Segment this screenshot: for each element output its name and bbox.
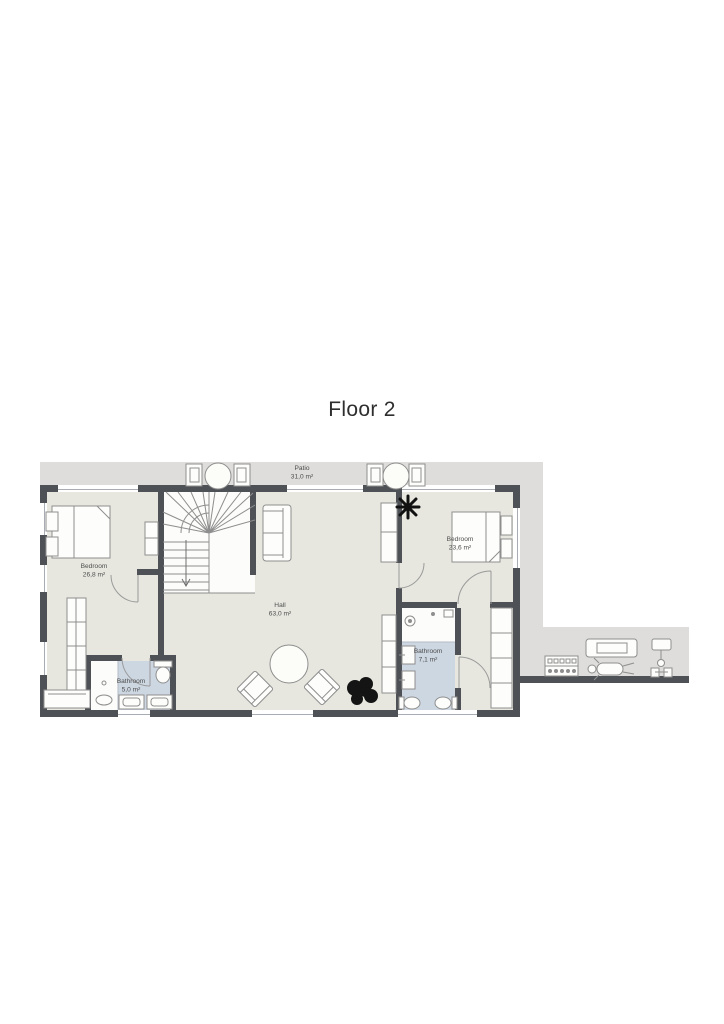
- window: [252, 710, 313, 717]
- window: [118, 710, 150, 717]
- room-label-hall: Hall63,0 m²: [269, 602, 291, 619]
- room-label-bedroom-right: Bedroom23,6 m²: [447, 536, 474, 553]
- window: [398, 710, 477, 717]
- wall-bedroom-right-upper: [396, 492, 402, 563]
- floor-plan-canvas: Patio31,0 m² Bedroom26,8 m² Bedroom23,6 …: [0, 0, 724, 1024]
- window: [513, 508, 520, 568]
- room-label-bedroom-left: Bedroom26,8 m²: [81, 563, 108, 580]
- window: [58, 485, 138, 492]
- wall-bedroom-right-south-a: [396, 602, 457, 608]
- wall-bathroom-right-east-b: [455, 688, 461, 710]
- shower-left-floor: [91, 661, 118, 710]
- window: [40, 642, 47, 675]
- room-label-bathroom-left: Bathroom5,0 m²: [117, 678, 146, 695]
- gym-terrace-floor: [518, 627, 689, 683]
- staircase-floor: [163, 492, 255, 593]
- wall-bathroom-left-east: [170, 655, 176, 710]
- window: [40, 503, 47, 535]
- wall-bathroom-right-east-a: [455, 608, 461, 655]
- wall-stairs-west: [158, 492, 164, 569]
- shower-right-floor: [402, 608, 455, 642]
- wall-bathroom-right-west: [396, 608, 402, 710]
- wall-bedroom-right-lower: [396, 588, 402, 602]
- wall-bathroom-left-west: [85, 655, 91, 710]
- wall-stairs-east: [250, 492, 256, 575]
- window: [40, 565, 47, 592]
- wall-bedroom-right-south-b: [490, 602, 513, 608]
- patio-door: [402, 485, 495, 492]
- gym-terrace-wall: [518, 676, 689, 683]
- patio-door: [287, 485, 363, 492]
- room-label-bathroom-right: Bathroom7,1 m²: [414, 648, 443, 665]
- room-label-patio: Patio31,0 m²: [291, 465, 313, 482]
- wall-dressing: [158, 575, 164, 660]
